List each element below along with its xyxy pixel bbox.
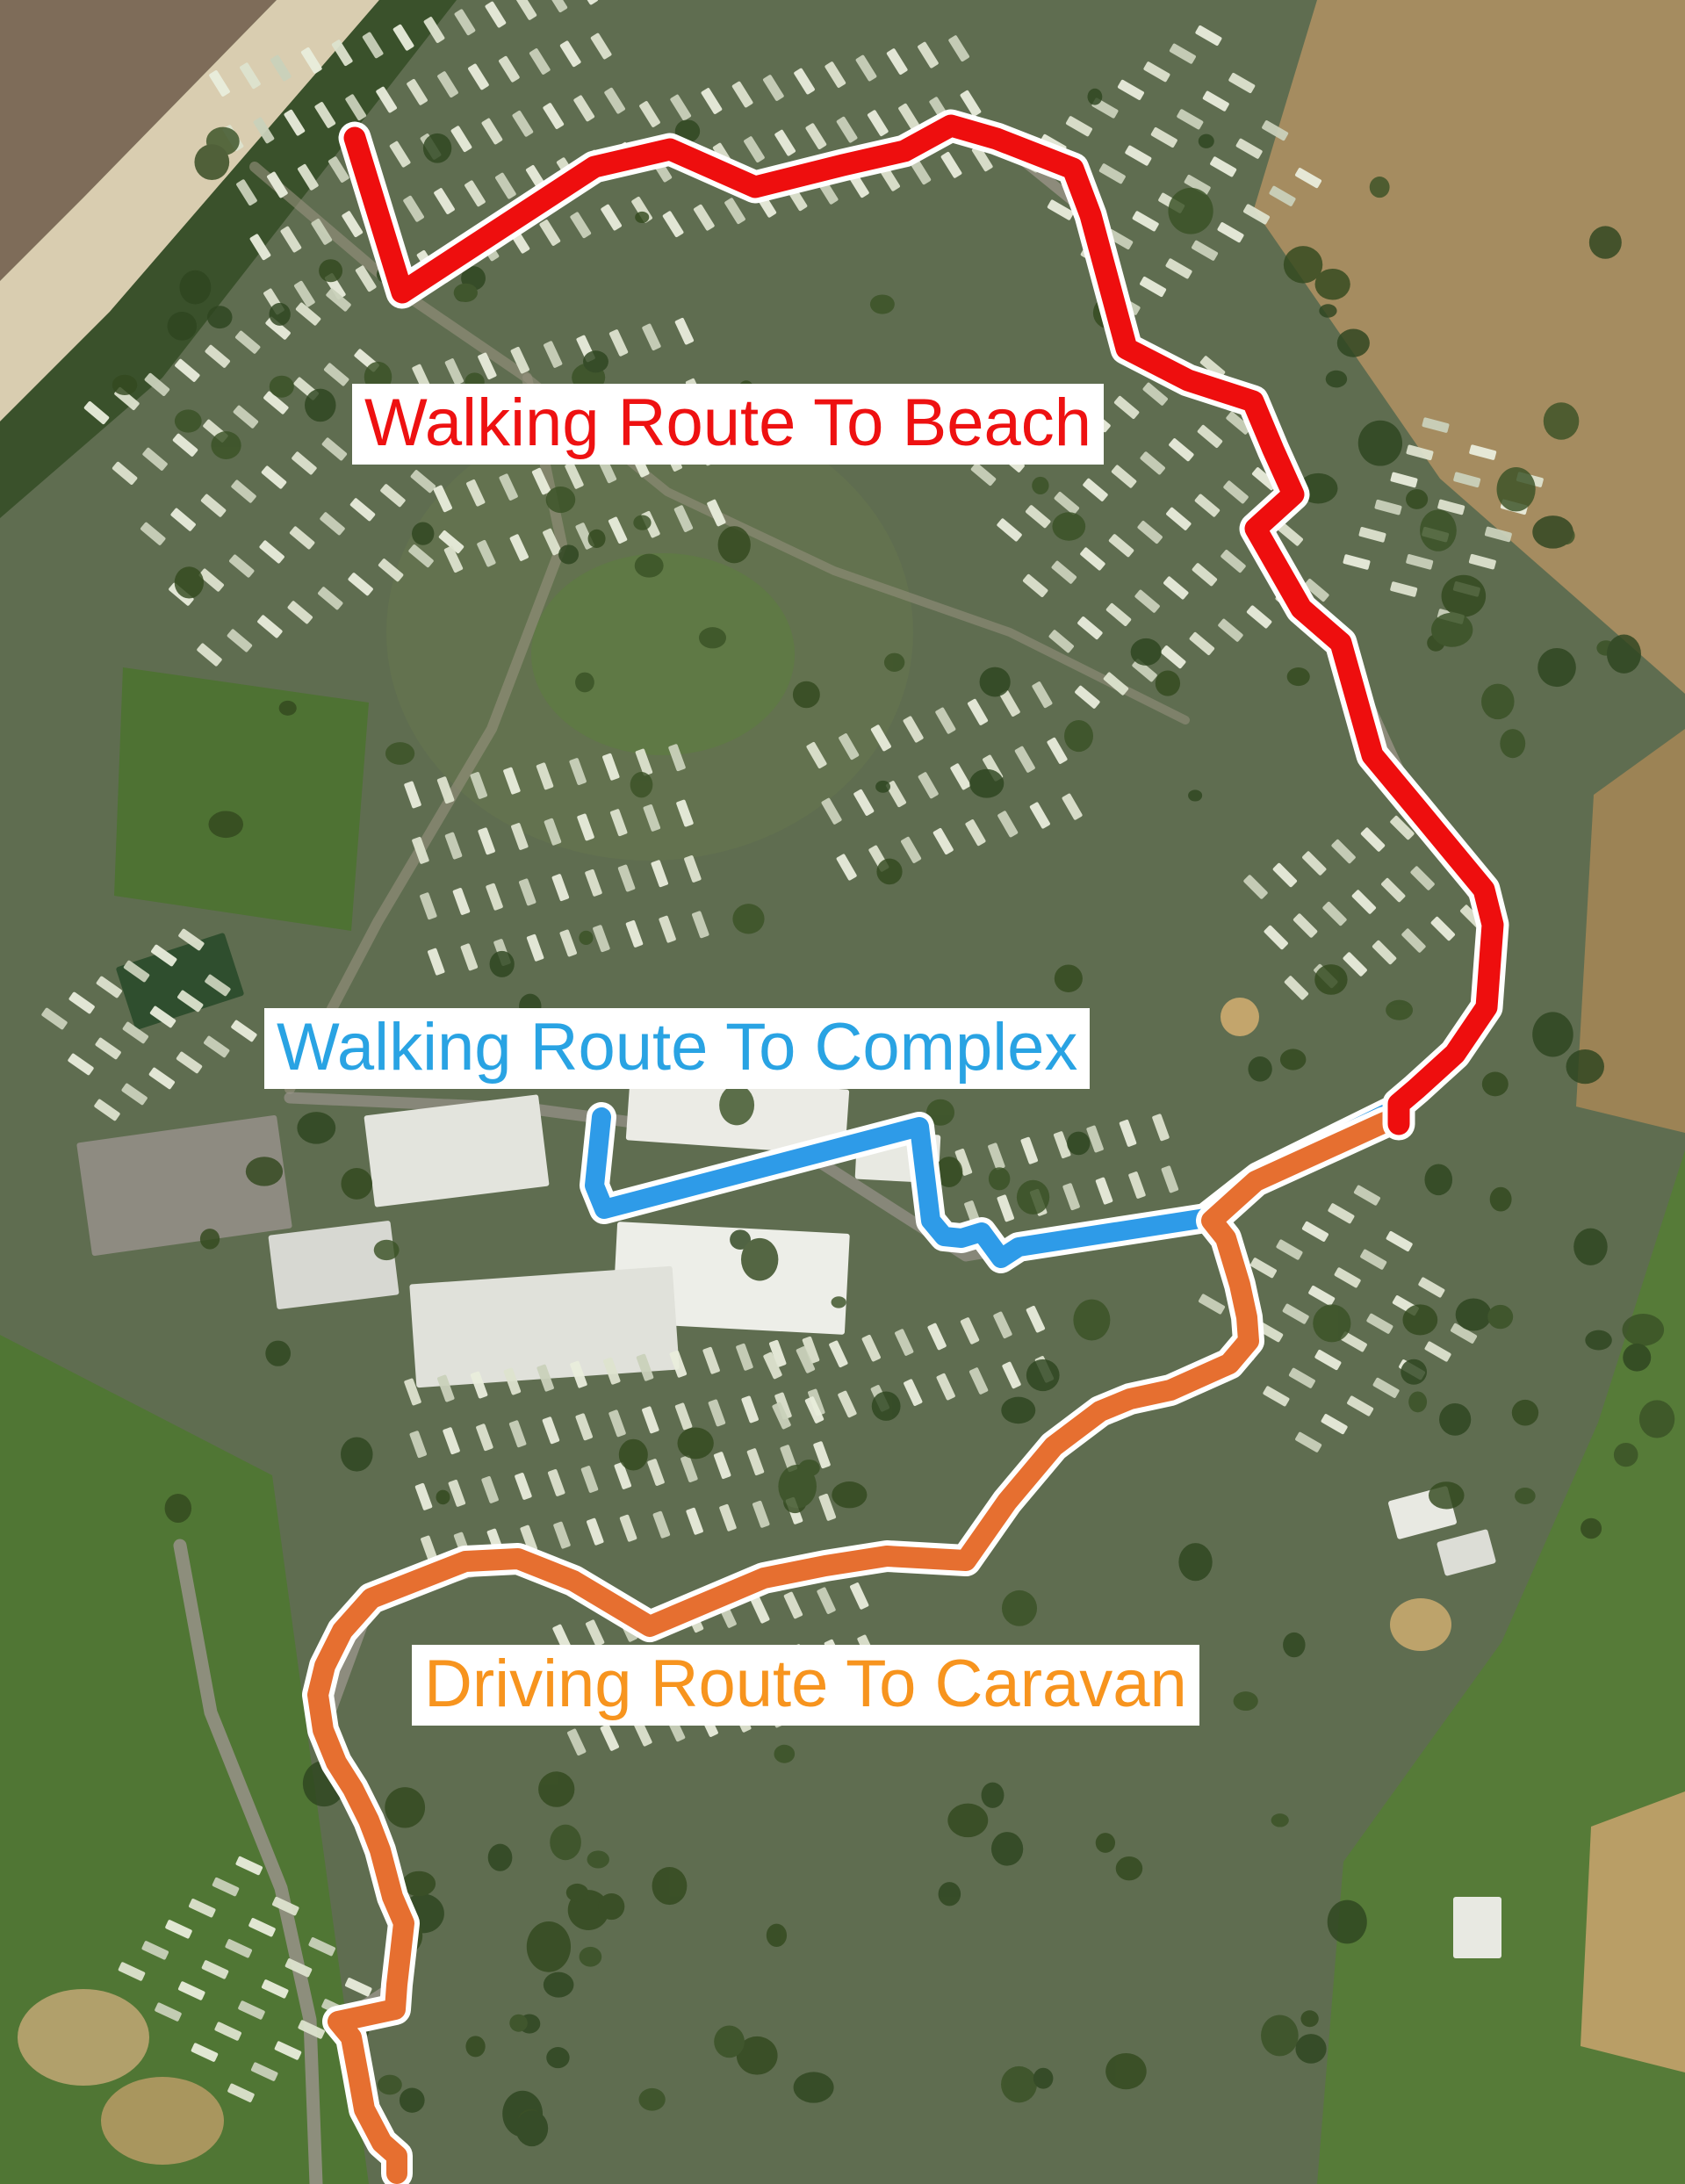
- tree: [580, 1947, 602, 1967]
- tree: [982, 1783, 1005, 1808]
- tree: [546, 487, 576, 513]
- tree: [635, 554, 664, 578]
- sports-field: [114, 667, 369, 931]
- tree: [939, 1882, 961, 1906]
- tree: [175, 566, 204, 598]
- tree: [1402, 1304, 1437, 1335]
- tree: [1001, 1397, 1035, 1424]
- tree: [1424, 1164, 1452, 1196]
- tree: [639, 2088, 666, 2111]
- satellite-map-canvas: [0, 0, 1685, 2184]
- tree: [1052, 512, 1085, 541]
- tree: [1096, 1833, 1115, 1853]
- tree: [1328, 1900, 1367, 1944]
- tree: [1131, 638, 1162, 666]
- tree: [884, 653, 904, 672]
- tree: [297, 1112, 335, 1143]
- tree: [832, 1296, 846, 1308]
- tree: [1497, 467, 1536, 511]
- tree: [341, 1438, 373, 1472]
- tree: [1073, 1300, 1110, 1341]
- tree: [436, 1490, 450, 1505]
- tree: [423, 133, 451, 163]
- tree: [947, 1804, 988, 1837]
- tree: [677, 1427, 713, 1459]
- tree: [1026, 1359, 1060, 1391]
- tree: [200, 1229, 220, 1250]
- tree: [168, 312, 198, 341]
- hay-circle-2: [101, 2077, 224, 2165]
- tree: [1429, 1481, 1465, 1509]
- tree: [270, 303, 291, 326]
- tree: [1573, 1229, 1608, 1265]
- tree: [1532, 1012, 1573, 1056]
- tree: [211, 431, 241, 459]
- tree: [1439, 1403, 1471, 1436]
- tree: [175, 409, 202, 432]
- tree: [1401, 1359, 1427, 1385]
- tree: [374, 1240, 400, 1260]
- tree: [1280, 1049, 1306, 1070]
- tree: [1482, 1072, 1509, 1097]
- tree: [1532, 515, 1573, 549]
- tree: [980, 667, 1011, 697]
- tree: [1607, 635, 1641, 674]
- tree: [1515, 1488, 1536, 1504]
- tree: [718, 526, 751, 563]
- tree: [1408, 1392, 1427, 1413]
- tree: [319, 259, 342, 282]
- tree: [1300, 2010, 1318, 2027]
- tree: [1248, 1056, 1271, 1082]
- tree: [774, 1745, 795, 1763]
- tree: [544, 1972, 574, 1998]
- tree: [989, 1167, 1010, 1190]
- tree: [1271, 1813, 1289, 1827]
- tree: [1067, 1132, 1090, 1156]
- tree: [1431, 613, 1473, 647]
- tree: [1156, 671, 1180, 696]
- tree: [1623, 1314, 1665, 1346]
- tree: [1639, 1400, 1674, 1438]
- tree: [527, 1921, 571, 1972]
- tree: [1295, 2034, 1326, 2064]
- tree: [566, 1884, 588, 1902]
- tree: [1585, 1330, 1611, 1351]
- tree: [1287, 667, 1310, 686]
- tree: [1168, 188, 1213, 234]
- tree: [699, 627, 726, 648]
- tree: [1315, 269, 1350, 300]
- tree: [635, 212, 649, 223]
- tree: [208, 811, 243, 838]
- complex-hall-3: [268, 1221, 399, 1309]
- tree: [793, 681, 820, 709]
- field-bottom-right-tan: [1581, 1791, 1685, 2072]
- tree: [165, 1494, 192, 1523]
- tree: [509, 2015, 528, 2032]
- tree: [732, 904, 764, 933]
- tree: [1319, 304, 1336, 317]
- tree: [1581, 1518, 1602, 1539]
- tree: [741, 1238, 778, 1281]
- tree: [1614, 1443, 1638, 1467]
- tree: [633, 515, 651, 530]
- tree: [1537, 648, 1576, 687]
- tree: [1481, 684, 1515, 720]
- tree: [1358, 421, 1402, 466]
- tree: [1001, 2066, 1037, 2103]
- tree: [969, 769, 1004, 798]
- tree: [599, 1893, 625, 1920]
- tree: [112, 375, 137, 395]
- tree: [179, 270, 211, 305]
- tree: [575, 673, 594, 693]
- tree: [1420, 509, 1457, 551]
- tree: [1283, 1633, 1305, 1657]
- tree: [1105, 2053, 1147, 2089]
- tree: [1064, 720, 1093, 752]
- tree: [579, 931, 593, 945]
- tree: [714, 2026, 745, 2058]
- tree: [1313, 1304, 1350, 1342]
- tree: [778, 1465, 817, 1508]
- tree: [194, 144, 229, 180]
- tree: [305, 389, 336, 422]
- tree: [1033, 2068, 1054, 2089]
- beach-route-label-text: Walking Route To Beach: [364, 390, 1091, 457]
- complex-route-label-text: Walking Route To Complex: [277, 1014, 1077, 1081]
- tree: [1017, 1180, 1049, 1215]
- caravan-route-label: Driving Route To Caravan: [412, 1645, 1199, 1726]
- tree: [550, 1825, 581, 1861]
- pond-feature: [1390, 1598, 1451, 1651]
- tree: [1261, 2015, 1299, 2056]
- tree: [265, 1341, 291, 1366]
- tree: [1589, 226, 1622, 258]
- tree: [465, 2036, 485, 2057]
- tree: [385, 1787, 425, 1827]
- tree: [619, 1439, 648, 1471]
- tree: [1487, 1305, 1513, 1329]
- tree: [1456, 1298, 1492, 1330]
- tree: [1088, 89, 1103, 105]
- tree: [490, 951, 515, 977]
- tree: [1234, 1691, 1258, 1711]
- tree: [538, 1771, 574, 1806]
- tree: [875, 781, 890, 793]
- tree: [279, 701, 297, 716]
- tree: [270, 376, 294, 398]
- tree: [1386, 1000, 1413, 1020]
- tree: [587, 1850, 609, 1868]
- tree: [1032, 477, 1048, 494]
- tree: [385, 742, 414, 765]
- complex-route-label: Walking Route To Complex: [264, 1008, 1090, 1089]
- tree: [832, 1481, 867, 1508]
- tree: [872, 1391, 901, 1420]
- round-feature: [1221, 998, 1259, 1036]
- tree: [488, 1844, 513, 1871]
- tree: [515, 2110, 548, 2146]
- tree: [1188, 789, 1202, 801]
- farm-building-3: [1453, 1897, 1501, 1958]
- tree: [558, 544, 579, 564]
- tree: [719, 1085, 754, 1125]
- caravan-route-label-text: Driving Route To Caravan: [424, 1651, 1187, 1718]
- tree: [583, 350, 608, 372]
- tree: [1566, 1049, 1604, 1084]
- tree: [870, 294, 895, 314]
- tree: [378, 2075, 402, 2095]
- tree: [1178, 1543, 1212, 1581]
- tree: [1442, 575, 1487, 617]
- tree: [876, 859, 902, 885]
- tree: [454, 284, 478, 302]
- tree: [341, 1168, 372, 1200]
- tree: [767, 1924, 787, 1947]
- beach-route-label: Walking Route To Beach: [352, 384, 1104, 465]
- tree: [400, 2087, 425, 2112]
- tree: [1314, 964, 1347, 995]
- tree: [1002, 1590, 1037, 1626]
- tree: [652, 1867, 688, 1905]
- tree: [630, 772, 653, 797]
- tree: [546, 2047, 569, 2068]
- tree: [1512, 1400, 1538, 1426]
- tree: [1370, 177, 1390, 198]
- center-lawn: [531, 553, 795, 755]
- tree: [1490, 1187, 1512, 1212]
- tree: [1500, 729, 1525, 758]
- tree: [1116, 1856, 1142, 1880]
- tree: [207, 306, 233, 328]
- tree: [1326, 371, 1347, 388]
- tree: [1623, 1344, 1651, 1372]
- tree: [1406, 489, 1428, 509]
- hay-circle-1: [18, 1989, 149, 2086]
- tree: [1055, 964, 1083, 992]
- tree: [246, 1157, 283, 1186]
- tree: [1199, 134, 1214, 148]
- tree: [1544, 402, 1580, 439]
- tree: [794, 2072, 834, 2102]
- tree: [588, 530, 606, 548]
- tree: [412, 523, 434, 545]
- tree: [1337, 328, 1370, 357]
- tree: [991, 1832, 1023, 1866]
- annotated-satellite-map: Walking Route To Beach Walking Route To …: [0, 0, 1685, 2184]
